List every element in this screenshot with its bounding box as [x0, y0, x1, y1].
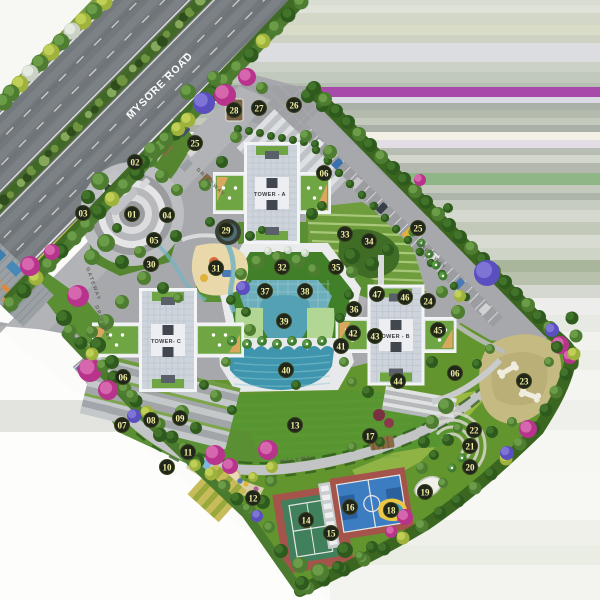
svg-text:45: 45 [434, 325, 444, 335]
svg-text:18: 18 [387, 505, 397, 515]
svg-text:04: 04 [163, 210, 173, 220]
svg-text:01: 01 [128, 209, 138, 219]
svg-text:20: 20 [466, 462, 476, 472]
svg-text:21: 21 [466, 441, 476, 451]
svg-text:36: 36 [350, 304, 360, 314]
svg-text:41: 41 [337, 341, 347, 351]
svg-text:28: 28 [230, 105, 240, 115]
svg-text:22: 22 [470, 425, 480, 435]
svg-text:14: 14 [302, 515, 312, 525]
svg-text:10: 10 [163, 462, 173, 472]
svg-text:43: 43 [371, 331, 381, 341]
svg-text:30: 30 [147, 259, 157, 269]
svg-text:33: 33 [341, 229, 351, 239]
svg-text:32: 32 [278, 262, 288, 272]
svg-text:25: 25 [191, 138, 201, 148]
svg-text:03: 03 [79, 208, 89, 218]
svg-text:19: 19 [421, 487, 431, 497]
svg-text:37: 37 [261, 286, 271, 296]
svg-text:TOWER- C: TOWER- C [151, 339, 181, 345]
svg-text:25: 25 [414, 223, 424, 233]
svg-text:24: 24 [424, 296, 434, 306]
svg-text:35: 35 [332, 262, 342, 272]
svg-text:29: 29 [222, 225, 232, 235]
svg-text:16: 16 [346, 502, 356, 512]
svg-text:31: 31 [212, 263, 222, 273]
svg-text:06: 06 [320, 168, 330, 178]
svg-text:02: 02 [131, 157, 141, 167]
svg-text:27: 27 [255, 103, 265, 113]
svg-text:13: 13 [291, 420, 301, 430]
svg-text:46: 46 [401, 292, 411, 302]
svg-text:23: 23 [520, 376, 530, 386]
svg-text:38: 38 [301, 286, 311, 296]
svg-text:47: 47 [373, 289, 383, 299]
svg-text:34: 34 [365, 236, 375, 246]
svg-text:06: 06 [119, 372, 129, 382]
svg-text:40: 40 [282, 365, 292, 375]
svg-text:11: 11 [184, 447, 193, 457]
svg-text:08: 08 [147, 415, 157, 425]
svg-text:TOWER - A: TOWER - A [254, 192, 286, 198]
svg-text:42: 42 [349, 328, 359, 338]
svg-text:39: 39 [280, 316, 290, 326]
svg-text:12: 12 [249, 493, 259, 503]
svg-text:26: 26 [290, 100, 300, 110]
svg-text:15: 15 [327, 528, 337, 538]
svg-text:09: 09 [176, 413, 186, 423]
svg-text:05: 05 [150, 235, 160, 245]
svg-text:44: 44 [394, 376, 404, 386]
svg-text:17: 17 [366, 431, 376, 441]
svg-text:06: 06 [451, 368, 461, 378]
svg-text:07: 07 [118, 420, 128, 430]
